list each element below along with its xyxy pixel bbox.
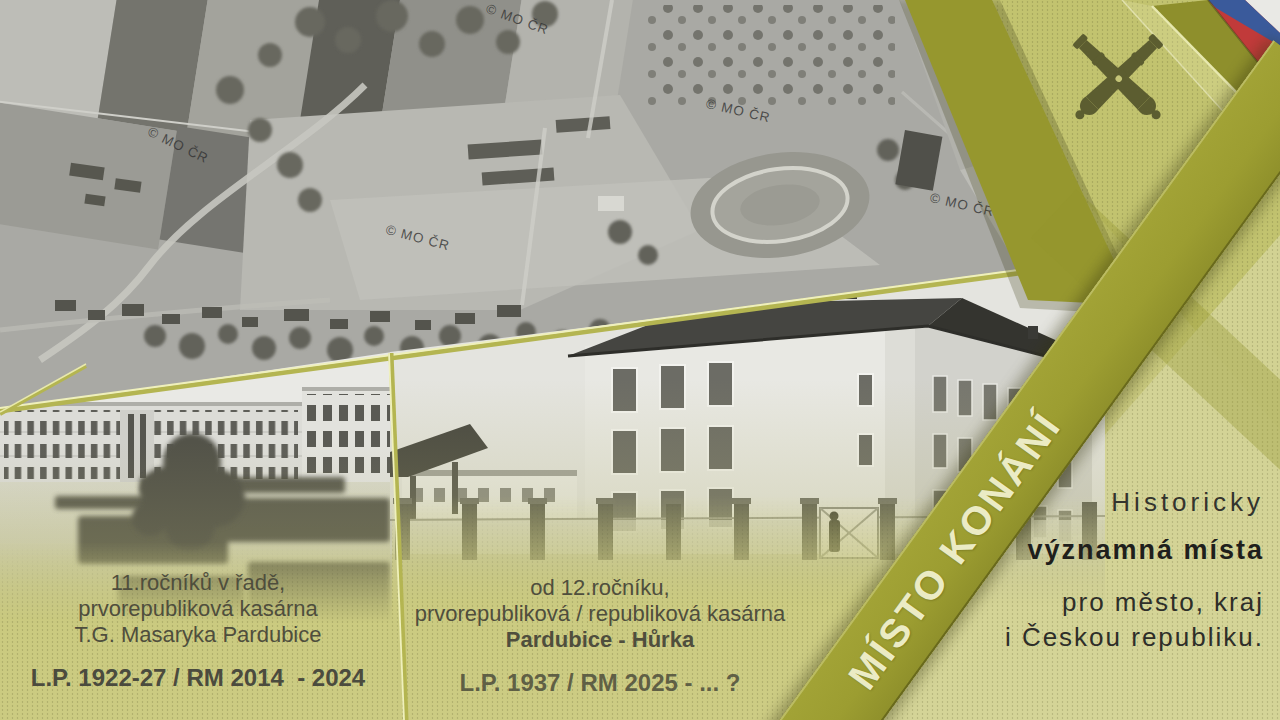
slide-statement: Historicky významná místa pro město, kra…	[1005, 487, 1264, 655]
caption-highlight: Pardubice - Hůrka	[385, 627, 815, 653]
statement-line: Historicky	[1005, 487, 1264, 518]
statement-line: i Českou republiku.	[1005, 620, 1264, 655]
caption-dates: L.P. 1937 / RM 2025 - ... ?	[385, 670, 815, 696]
caption-dates: L.P. 1922-27 / RM 2014 - 2024	[28, 665, 368, 691]
caption-line: T.G. Masaryka Pardubice	[28, 622, 368, 648]
statement-line-bold: významná místa	[1005, 535, 1264, 566]
caption-hurka: od 12.ročníku, prvorepubliková / republi…	[385, 575, 815, 696]
caption-line: 11.ročníků v řadě,	[28, 570, 368, 596]
aerial-orchard	[645, 5, 895, 110]
caption-line: od 12.ročníku,	[385, 575, 815, 601]
caption-line: prvorepubliková kasárna	[28, 596, 368, 622]
presentation-slide: © MO ČR © MO ČR © MO ČR © MO ČR © MO ČR	[0, 0, 1280, 720]
statement-line: pro město, kraj	[1005, 585, 1264, 620]
caption-masaryk: 11.ročníků v řadě, prvorepubliková kasár…	[28, 570, 368, 691]
caption-line: prvorepubliková / republiková kasárna	[385, 601, 815, 627]
